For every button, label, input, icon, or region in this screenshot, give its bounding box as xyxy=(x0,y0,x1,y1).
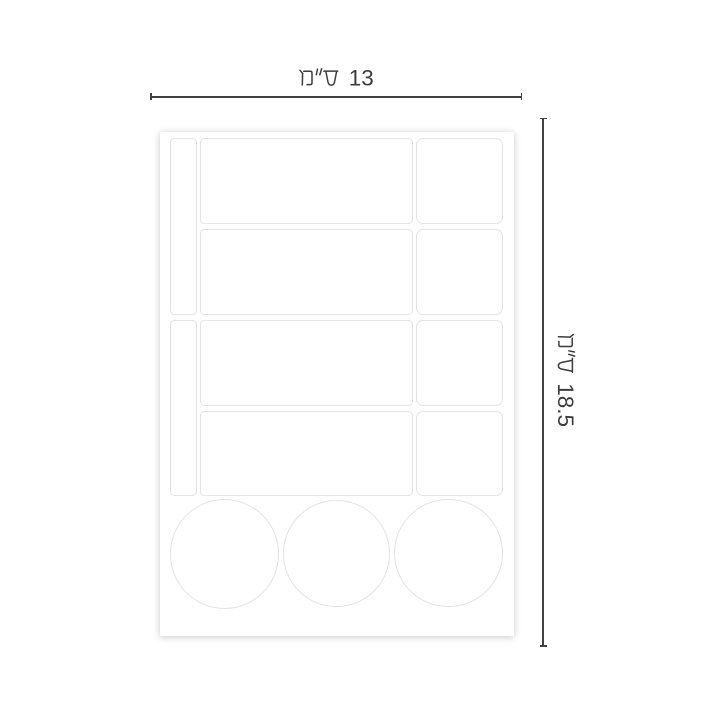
svg-text:18.5: 18.5 xyxy=(556,383,576,427)
svg-text:13: 13 xyxy=(349,68,374,88)
